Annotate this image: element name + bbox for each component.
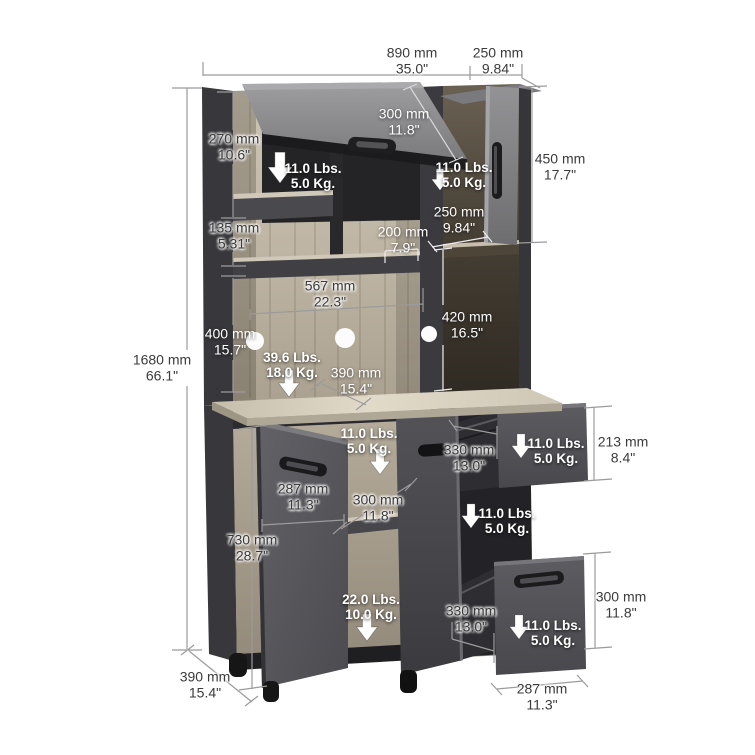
dim-bottom-drawer-depth: 330 mm13.0" [446,603,497,634]
back-panel-hole [335,328,355,348]
dim-center-opening-width: 567 mm22.3" [305,278,356,309]
dim-top-drawer-depth: 330 mm13.0" [444,442,495,473]
capacity-base-upper-shelf: 11.0 Lbs.5.0 Kg. [340,426,397,456]
capacity-upper-right-shelf: 11.0 Lbs.5.0 Kg. [435,160,492,190]
dim-top-depth: 250 mm9.84" [473,45,524,76]
inch-value: 11.8" [379,122,430,138]
inch-value: 16.5" [442,325,493,341]
lbs-value: 11.0 Lbs. [435,160,492,175]
kg-value: 18.0 Kg. [263,365,321,380]
mm-value: 250 mm [473,45,524,61]
inch-value: 28.7" [227,548,278,564]
inch-value: 22.3" [305,294,356,310]
mm-value: 450 mm [535,151,586,167]
inch-value: 13.0" [446,619,497,635]
inch-value: 11.3" [517,697,568,713]
dim-overall-width: 890 mm35.0" [387,45,438,76]
mm-value: 730 mm [227,532,278,548]
lbs-value: 11.0 Lbs. [527,436,584,451]
mm-value: 250 mm [434,204,485,220]
inch-value: 11.3" [278,497,329,513]
dim-base-depth: 390 mm15.4" [180,669,231,700]
inch-value: 35.0" [387,61,438,77]
inch-value: 66.1" [133,368,191,384]
kg-value: 5.0 Kg. [478,521,535,536]
mm-value: 330 mm [446,603,497,619]
mm-value: 135 mm [209,220,260,236]
dim-upper-right-door-height: 450 mm17.7" [535,151,586,182]
lbs-value: 11.0 Lbs. [524,618,581,633]
lbs-value: 11.0 Lbs. [284,161,341,176]
dim-upper-right-shelf-depth: 250 mm9.84" [434,204,485,235]
inch-value: 17.7" [535,167,586,183]
capacity-base-middle-shelf: 11.0 Lbs.5.0 Kg. [478,506,535,536]
capacity-base-lower-shelf: 22.0 Lbs.10.0 Kg. [342,592,400,622]
capacity-upper-left-shelf: 11.0 Lbs.5.0 Kg. [284,161,341,191]
dim-base-door-width: 287 mm11.3" [278,481,329,512]
dim-bottom-drawer-width: 287 mm11.3" [517,681,568,712]
inch-value: 11.8" [596,605,647,621]
mm-value: 270 mm [209,131,260,147]
inch-value: 9.84" [473,61,524,77]
dim-base-height: 730 mm28.7" [227,532,278,563]
capacity-bottom-drawer: 11.0 Lbs.5.0 Kg. [524,618,581,648]
inch-value: 9.84" [434,220,485,236]
kg-value: 5.0 Kg. [524,633,581,648]
kg-value: 5.0 Kg. [435,175,492,190]
inch-value: 7.9" [378,240,429,256]
dim-center-opening-height: 400 mm15.7" [205,326,256,357]
cabinet-foot [229,653,247,677]
back-panel-hole [421,326,437,342]
kg-value: 5.0 Kg. [284,176,341,191]
inch-value: 8.4" [598,450,649,466]
dim-flip-door-height: 300 mm11.8" [379,106,430,137]
mm-value: 300 mm [596,589,647,605]
dim-overall-height: 1680 mm66.1" [133,352,191,383]
dim-upper-left-opening-height: 270 mm10.6" [209,131,260,162]
dim-shelf-spacing: 135 mm5.31" [209,220,260,251]
mm-value: 300 mm [353,492,404,508]
dim-small-shelf-depth: 200 mm7.9" [378,224,429,255]
dim-base-shelf-depth: 300 mm11.8" [353,492,404,523]
inch-value: 5.31" [209,236,260,252]
mm-value: 390 mm [331,365,382,381]
cabinet-foot [400,670,417,693]
mm-value: 287 mm [278,481,329,497]
inch-value: 15.7" [205,342,256,358]
lbs-value: 39.6 Lbs. [263,350,321,365]
capacity-countertop: 39.6 Lbs.18.0 Kg. [263,350,321,380]
lbs-value: 11.0 Lbs. [478,506,535,521]
mm-value: 330 mm [444,442,495,458]
inch-value: 15.4" [180,685,231,701]
hutch-right-side-panel [519,88,531,400]
lbs-value: 22.0 Lbs. [342,592,400,607]
capacity-top-drawer: 11.0 Lbs.5.0 Kg. [527,436,584,466]
upper-right-door-handle [492,142,502,199]
mm-value: 213 mm [598,434,649,450]
mm-value: 400 mm [205,326,256,342]
lbs-value: 11.0 Lbs. [340,426,397,441]
mm-value: 890 mm [387,45,438,61]
cabinet-foot [263,681,279,702]
dim-counter-depth: 390 mm15.4" [331,365,382,396]
dim-bottom-drawer-height: 300 mm11.8" [596,589,647,620]
mm-value: 200 mm [378,224,429,240]
mm-value: 1680 mm [133,352,191,368]
inch-value: 13.0" [444,458,495,474]
kg-value: 5.0 Kg. [527,451,584,466]
dim-upper-right-opening-height: 420 mm16.5" [442,309,493,340]
inch-value: 11.8" [353,508,404,524]
mm-value: 567 mm [305,278,356,294]
kg-value: 10.0 Kg. [342,607,400,622]
inch-value: 10.6" [209,147,260,163]
mm-value: 420 mm [442,309,493,325]
dimension-diagram: 890 mm35.0" 250 mm9.84" 300 mm11.8" 270 … [0,0,755,755]
mm-value: 287 mm [517,681,568,697]
mm-value: 300 mm [379,106,430,122]
mm-value: 390 mm [180,669,231,685]
inch-value: 15.4" [331,381,382,397]
kg-value: 5.0 Kg. [340,441,397,456]
dim-top-drawer-height: 213 mm8.4" [598,434,649,465]
